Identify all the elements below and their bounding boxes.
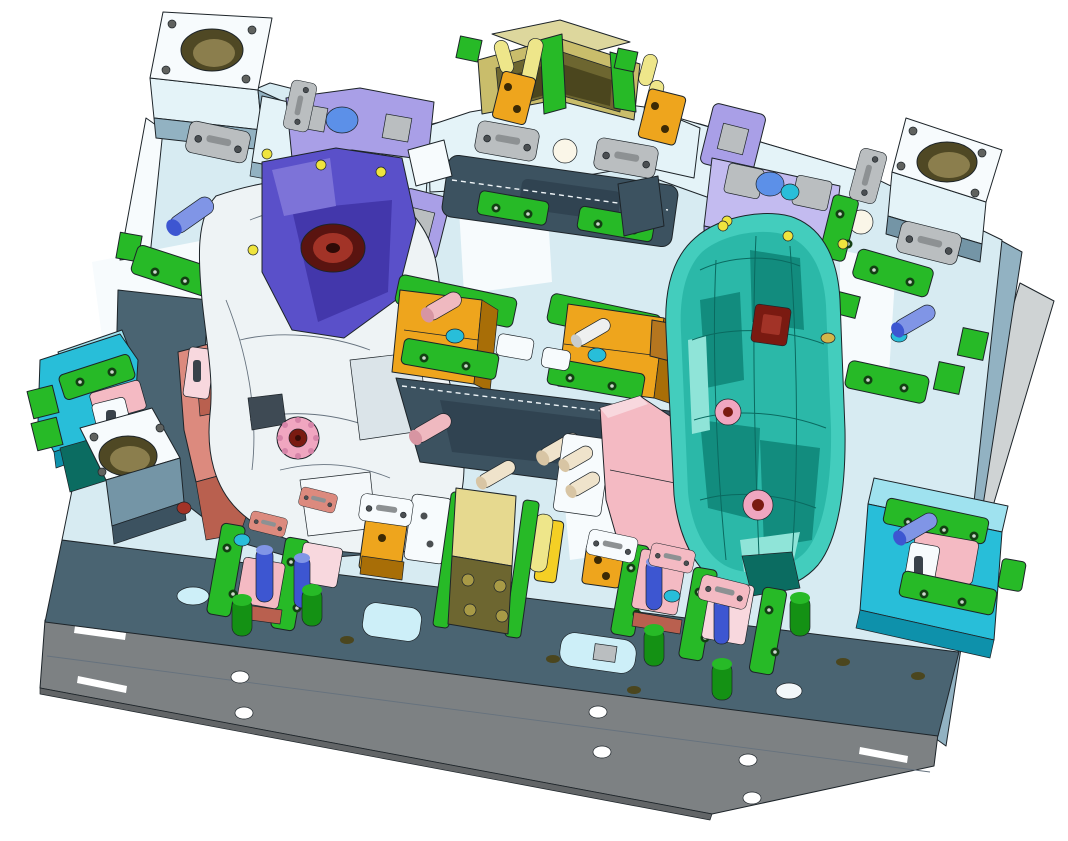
teal-pin [446, 329, 464, 343]
part-grommet [715, 399, 741, 425]
cad-viewport[interactable] [0, 0, 1068, 841]
guide-bushing-bore [181, 29, 243, 71]
cooling-port [177, 587, 209, 605]
red-plug [177, 502, 191, 514]
amber-gib [359, 517, 408, 580]
clamp-cube [998, 558, 1027, 592]
mold-assembly-render [0, 0, 1068, 841]
teal-pin [664, 590, 680, 602]
clamp-cube [933, 362, 964, 395]
gold-dot [821, 333, 835, 343]
part-grommet [743, 490, 773, 520]
gear-boss [277, 417, 319, 459]
teal-pin [588, 348, 606, 362]
molded-part-transparent [666, 214, 845, 596]
kO-hole [776, 683, 802, 699]
clamp-cube [957, 328, 988, 361]
guide-bushing-bore [917, 142, 977, 182]
dowel-pin-vertical [256, 545, 273, 602]
dark-blob [248, 394, 286, 430]
part-red-socket [751, 304, 792, 347]
side-slide-unit-right [856, 478, 1026, 658]
sprue-disc [553, 139, 577, 163]
teal-pin [234, 534, 250, 546]
dark-wedge [618, 176, 664, 236]
